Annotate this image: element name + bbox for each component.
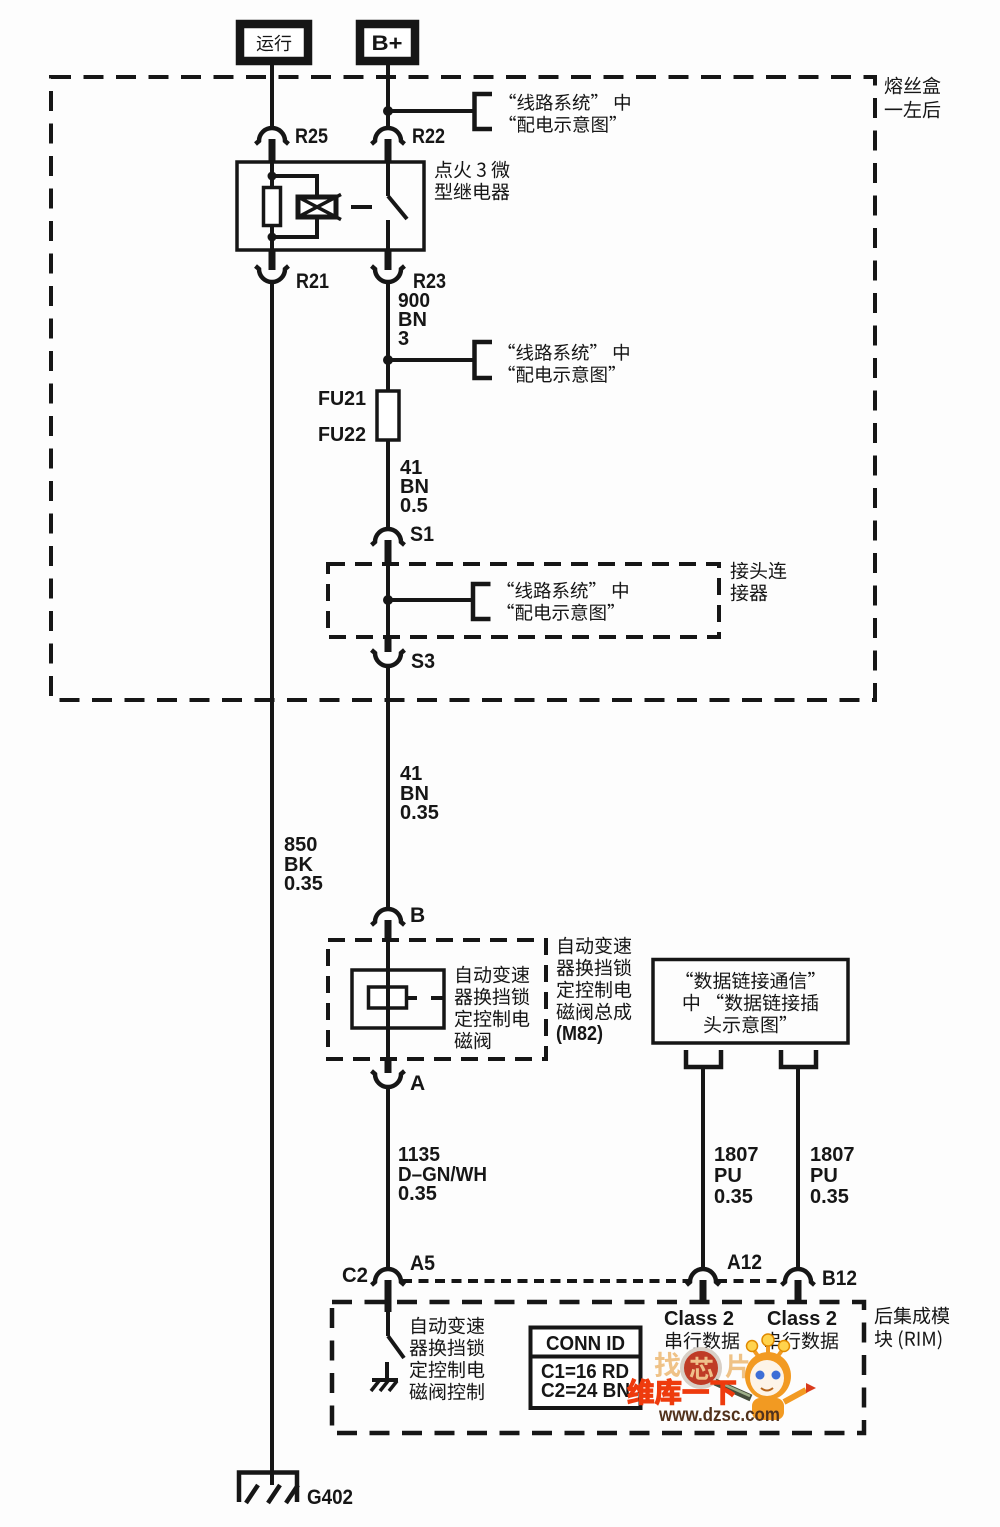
- svg-text:0.35: 0.35: [398, 1183, 437, 1205]
- svg-text:PU: PU: [810, 1165, 838, 1187]
- svg-text:0.35: 0.35: [810, 1186, 849, 1208]
- svg-text:0.5: 0.5: [400, 495, 428, 517]
- svg-text:B: B: [410, 904, 425, 927]
- svg-text:FU21: FU21: [318, 388, 366, 410]
- svg-text:FU22: FU22: [318, 424, 366, 446]
- svg-text:R25: R25: [295, 125, 328, 148]
- svg-text:B+: B+: [372, 32, 403, 55]
- svg-text:PU: PU: [714, 1165, 742, 1187]
- svg-text:CONN ID: CONN ID: [546, 1333, 625, 1355]
- svg-text:C2=24 BN: C2=24 BN: [541, 1380, 630, 1402]
- svg-text:B12: B12: [822, 1267, 857, 1290]
- svg-text:1135: 1135: [398, 1144, 440, 1166]
- svg-text:A5: A5: [410, 1252, 435, 1275]
- svg-text:0.35: 0.35: [714, 1186, 753, 1208]
- svg-text:(M82): (M82): [556, 1023, 603, 1045]
- svg-text:0.35: 0.35: [284, 873, 323, 895]
- svg-text:S3: S3: [411, 650, 435, 673]
- svg-text:R21: R21: [296, 270, 329, 293]
- svg-text:0.35: 0.35: [400, 802, 439, 824]
- svg-text:Class 2: Class 2: [767, 1308, 837, 1330]
- svg-text:Class 2: Class 2: [664, 1308, 734, 1330]
- svg-text:1807: 1807: [810, 1144, 855, 1166]
- svg-text:850: 850: [284, 834, 317, 856]
- svg-text:1807: 1807: [714, 1144, 759, 1166]
- svg-text:C2: C2: [342, 1264, 368, 1287]
- svg-text:www.dzsc.com: www.dzsc.com: [658, 1405, 780, 1426]
- svg-text:3: 3: [398, 328, 409, 350]
- svg-text:S1: S1: [410, 523, 434, 546]
- svg-text:R22: R22: [412, 125, 445, 148]
- svg-text:A12: A12: [727, 1251, 762, 1274]
- svg-text:G402: G402: [307, 1486, 353, 1509]
- svg-text:A: A: [410, 1072, 425, 1095]
- svg-text:41: 41: [400, 763, 422, 785]
